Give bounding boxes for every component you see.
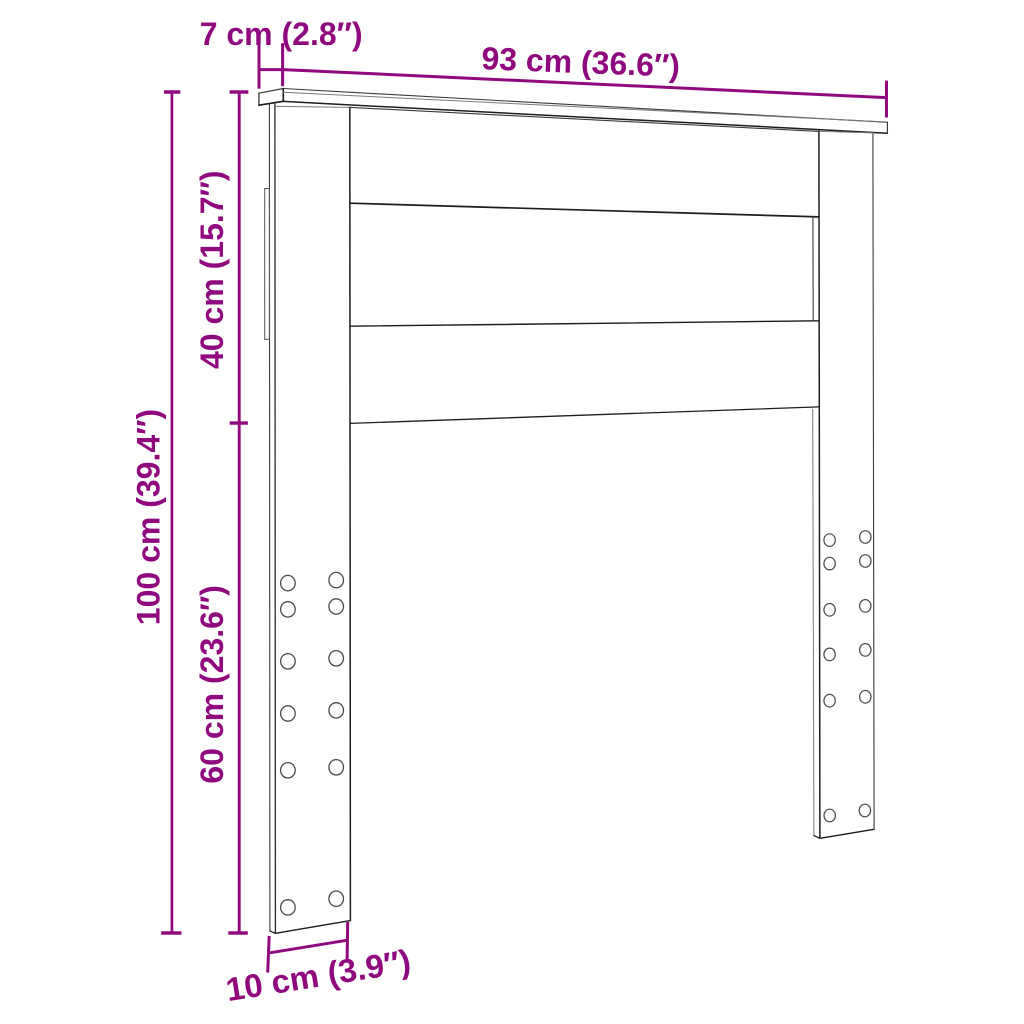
svg-text:100 cm (39.4″): 100 cm (39.4″) xyxy=(130,409,166,625)
svg-text:60 cm (23.6″): 60 cm (23.6″) xyxy=(194,585,230,784)
svg-text:40 cm (15.7″): 40 cm (15.7″) xyxy=(194,170,230,369)
svg-text:93 cm (36.6″): 93 cm (36.6″) xyxy=(481,40,681,84)
svg-text:7 cm (2.8″): 7 cm (2.8″) xyxy=(200,16,363,52)
